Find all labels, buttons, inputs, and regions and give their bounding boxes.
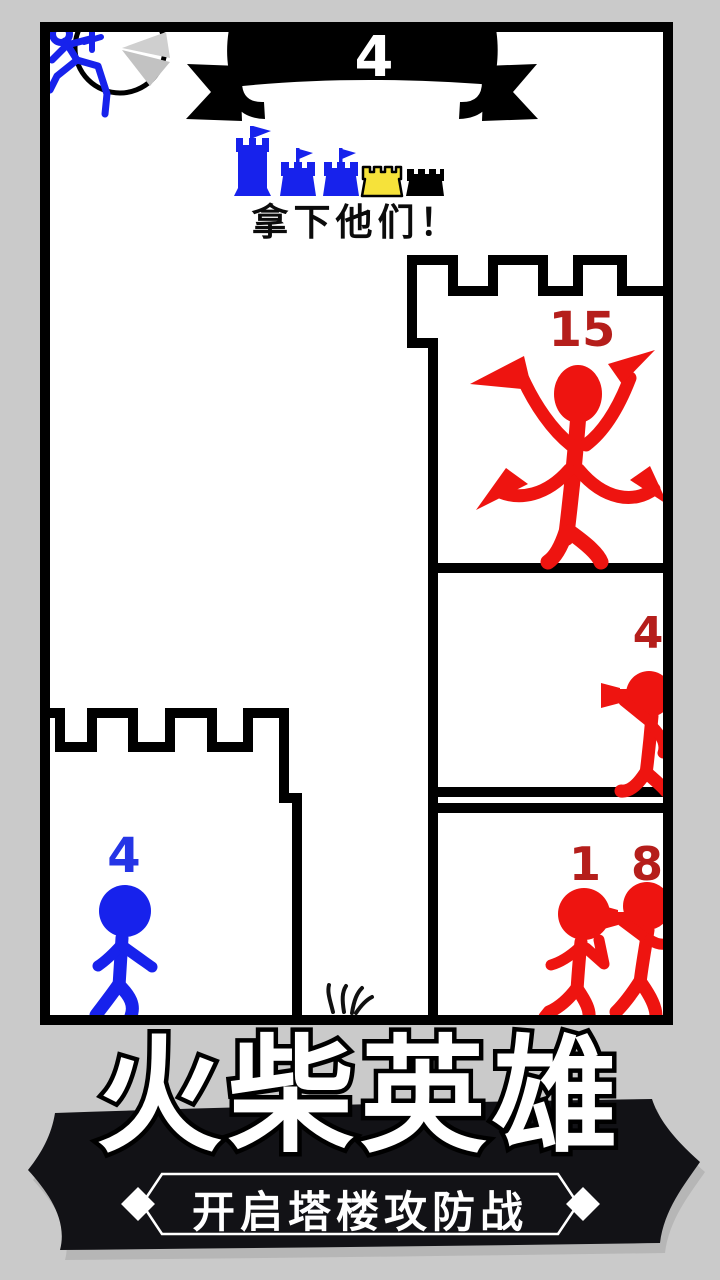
game-title: 火柴英雄	[0, 1028, 720, 1167]
wave-count: 4	[355, 25, 394, 90]
enemy-room-middle[interactable]	[438, 573, 663, 788]
game-subtitle: 开启塔楼攻防战	[140, 1178, 580, 1240]
game-subtitle-box: 开启塔楼攻防战	[140, 1172, 580, 1236]
player-castle-room[interactable]	[50, 713, 296, 1015]
enemy-room-top[interactable]	[433, 298, 663, 563]
instruction-text: 拿下他们！	[50, 192, 663, 246]
enemy-room-bottom[interactable]	[438, 813, 663, 1015]
game-screen: 4	[0, 0, 720, 1280]
